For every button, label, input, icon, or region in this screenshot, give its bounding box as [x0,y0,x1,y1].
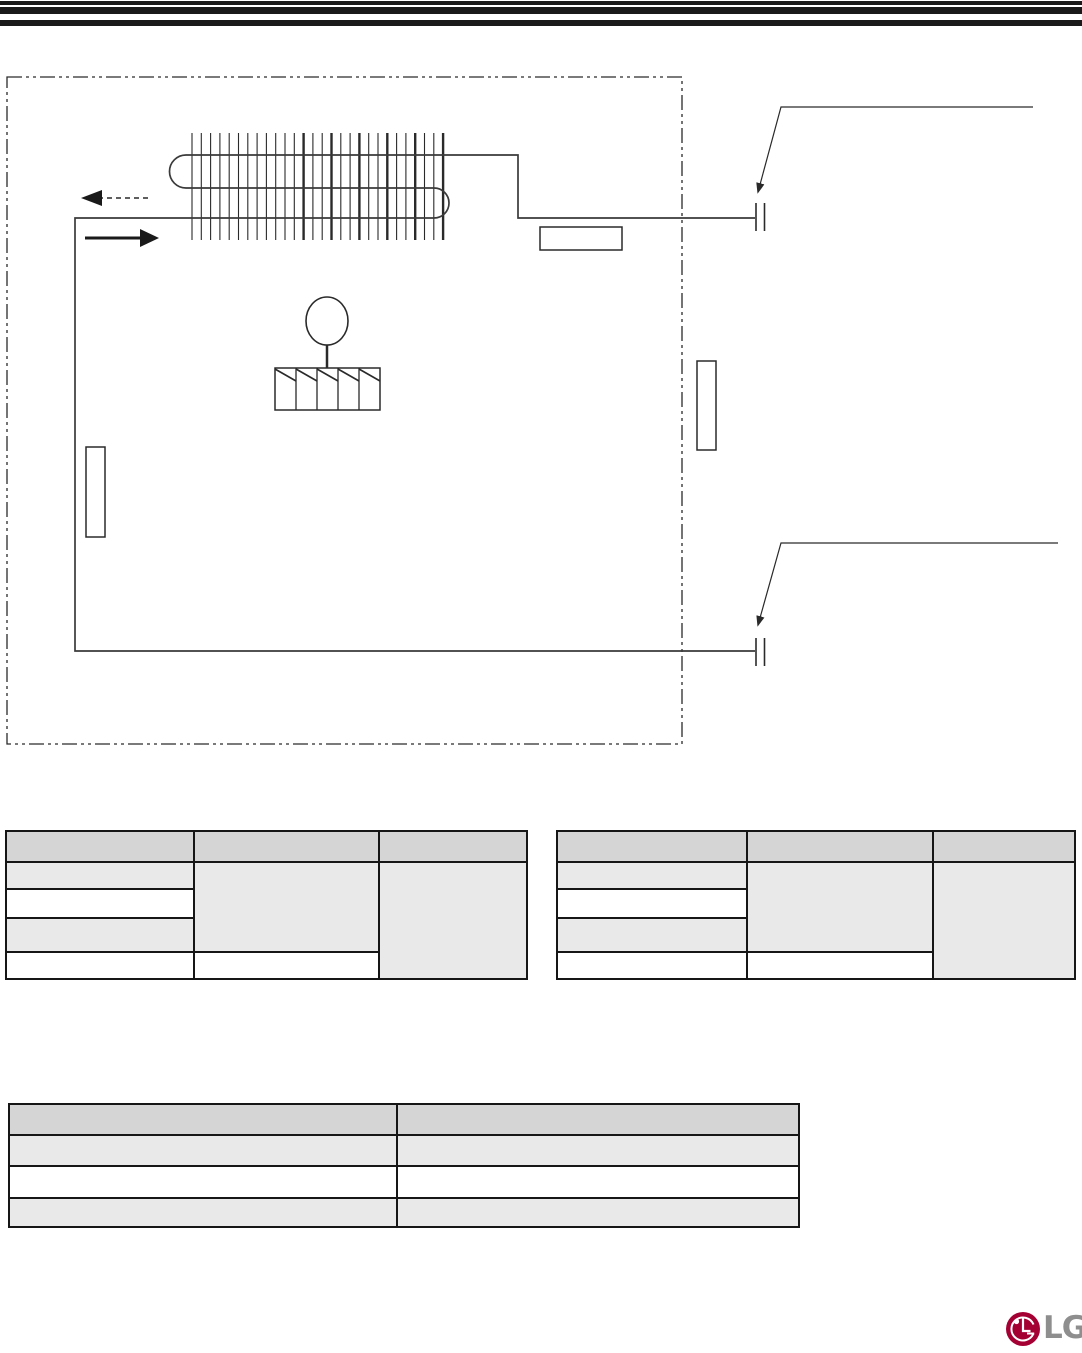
table-cell [398,1136,798,1165]
table-cell-merged [748,863,932,951]
table-cell-merged [380,863,526,978]
refrigerant-cycle-diagram [0,0,1082,800]
table-cell [10,1136,396,1165]
spec-table-left [5,830,528,980]
lg-logo: LG [1003,1309,1082,1349]
table-cell [748,953,932,978]
cross-flow-fan-icon [275,368,380,410]
table-cell-merged [934,863,1074,978]
table-cell [398,1167,798,1197]
lg-logo-text: LG [1043,1310,1082,1346]
table-header-cell [7,832,193,861]
table-cell [558,919,746,951]
callout-box-right [697,361,716,450]
table-cell [7,863,193,888]
table-cell [558,863,746,888]
callout-leader-bottom [758,543,1058,625]
pipe-connection-bottom-icon [756,638,765,666]
pipe-connection-top-icon [756,203,765,231]
spec-table-right [556,830,1076,980]
table-header-cell [10,1105,396,1134]
table-cell [7,953,193,978]
table-cell [558,953,746,978]
callout-box-left [86,447,105,537]
manual-page: LG [0,0,1082,1353]
table-header-cell [934,832,1074,861]
airflow-out-arrow-icon [81,190,148,206]
table-cell [7,919,193,951]
table-header-cell [195,832,378,861]
table-cell [195,953,378,978]
table-header-cell [380,832,526,861]
spec-table-bottom [8,1103,800,1228]
table-cell [10,1167,396,1197]
fan-motor-icon [306,297,348,368]
callout-box-pipe [540,227,622,250]
lg-symbol-icon [1003,1309,1043,1349]
table-header-cell [748,832,932,861]
table-cell [7,890,193,917]
table-header-cell [398,1105,798,1134]
heat-exchanger-fins-icon [192,133,443,240]
table-cell [10,1199,396,1226]
airflow-in-arrow-icon [85,229,159,247]
table-cell [558,890,746,917]
table-header-cell [558,832,746,861]
table-cell-merged [195,863,378,951]
table-cell [398,1199,798,1226]
callout-leader-top [758,107,1033,192]
